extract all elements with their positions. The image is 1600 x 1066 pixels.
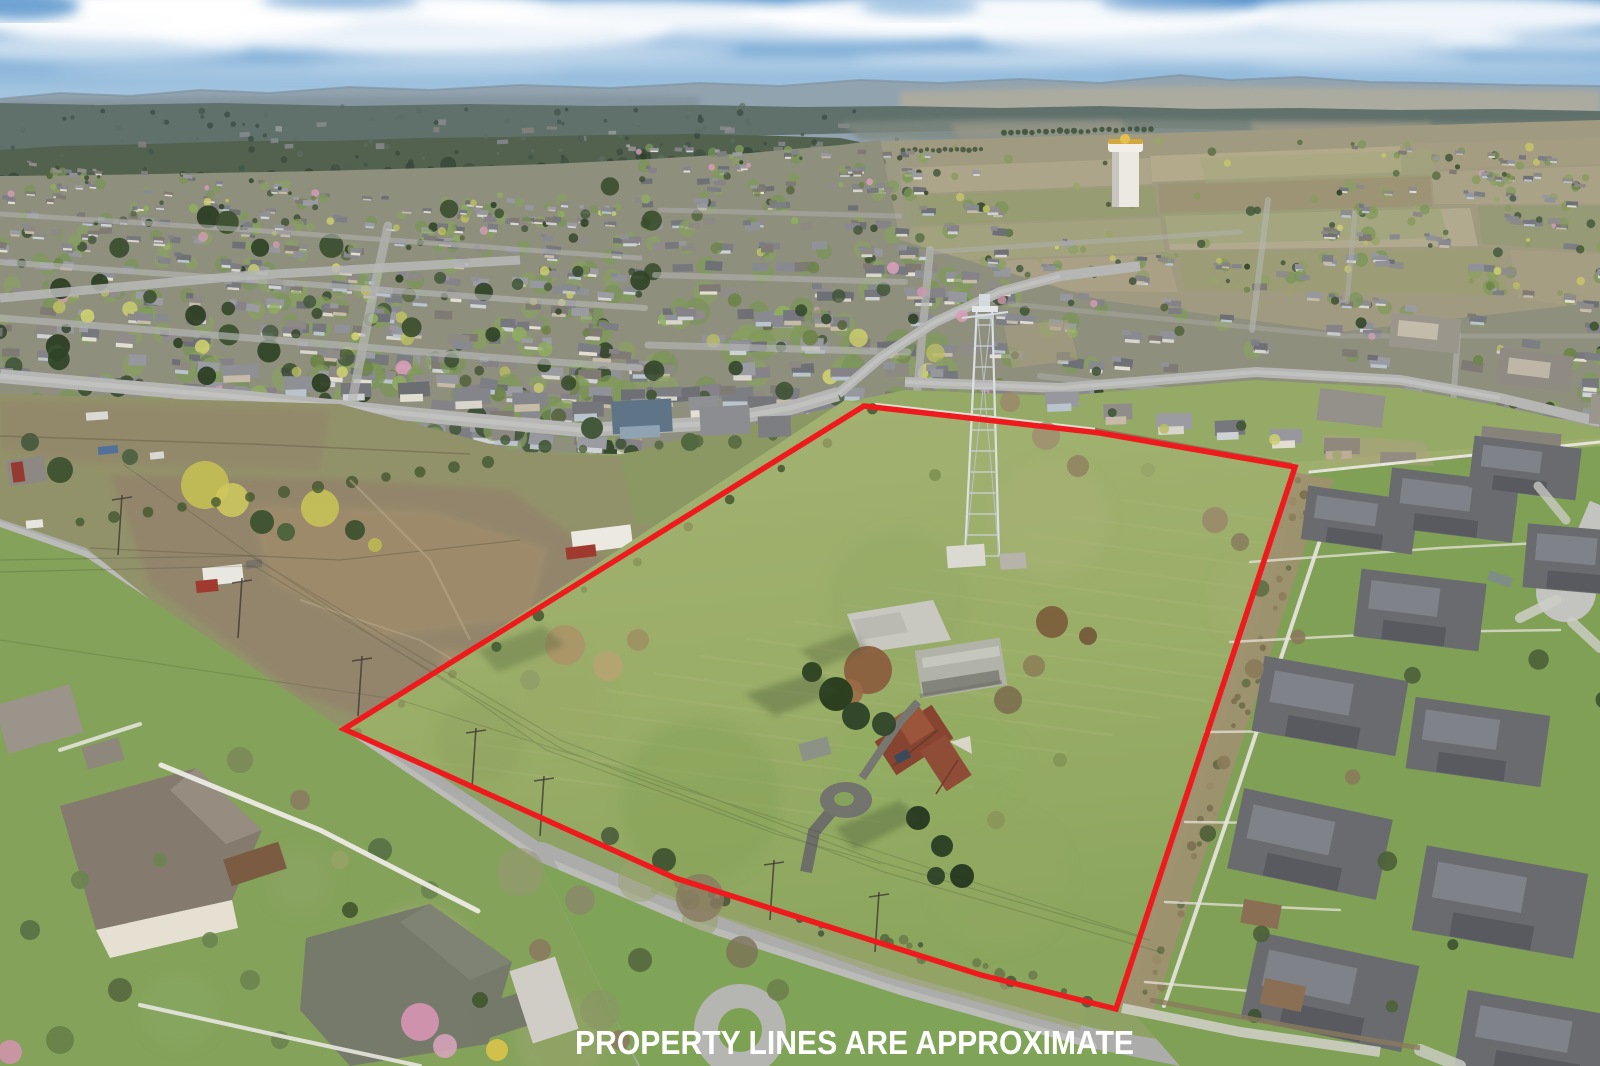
svg-text:PROPERTY LINES ARE APPROXIMATE: PROPERTY LINES ARE APPROXIMATE — [575, 1024, 1134, 1061]
